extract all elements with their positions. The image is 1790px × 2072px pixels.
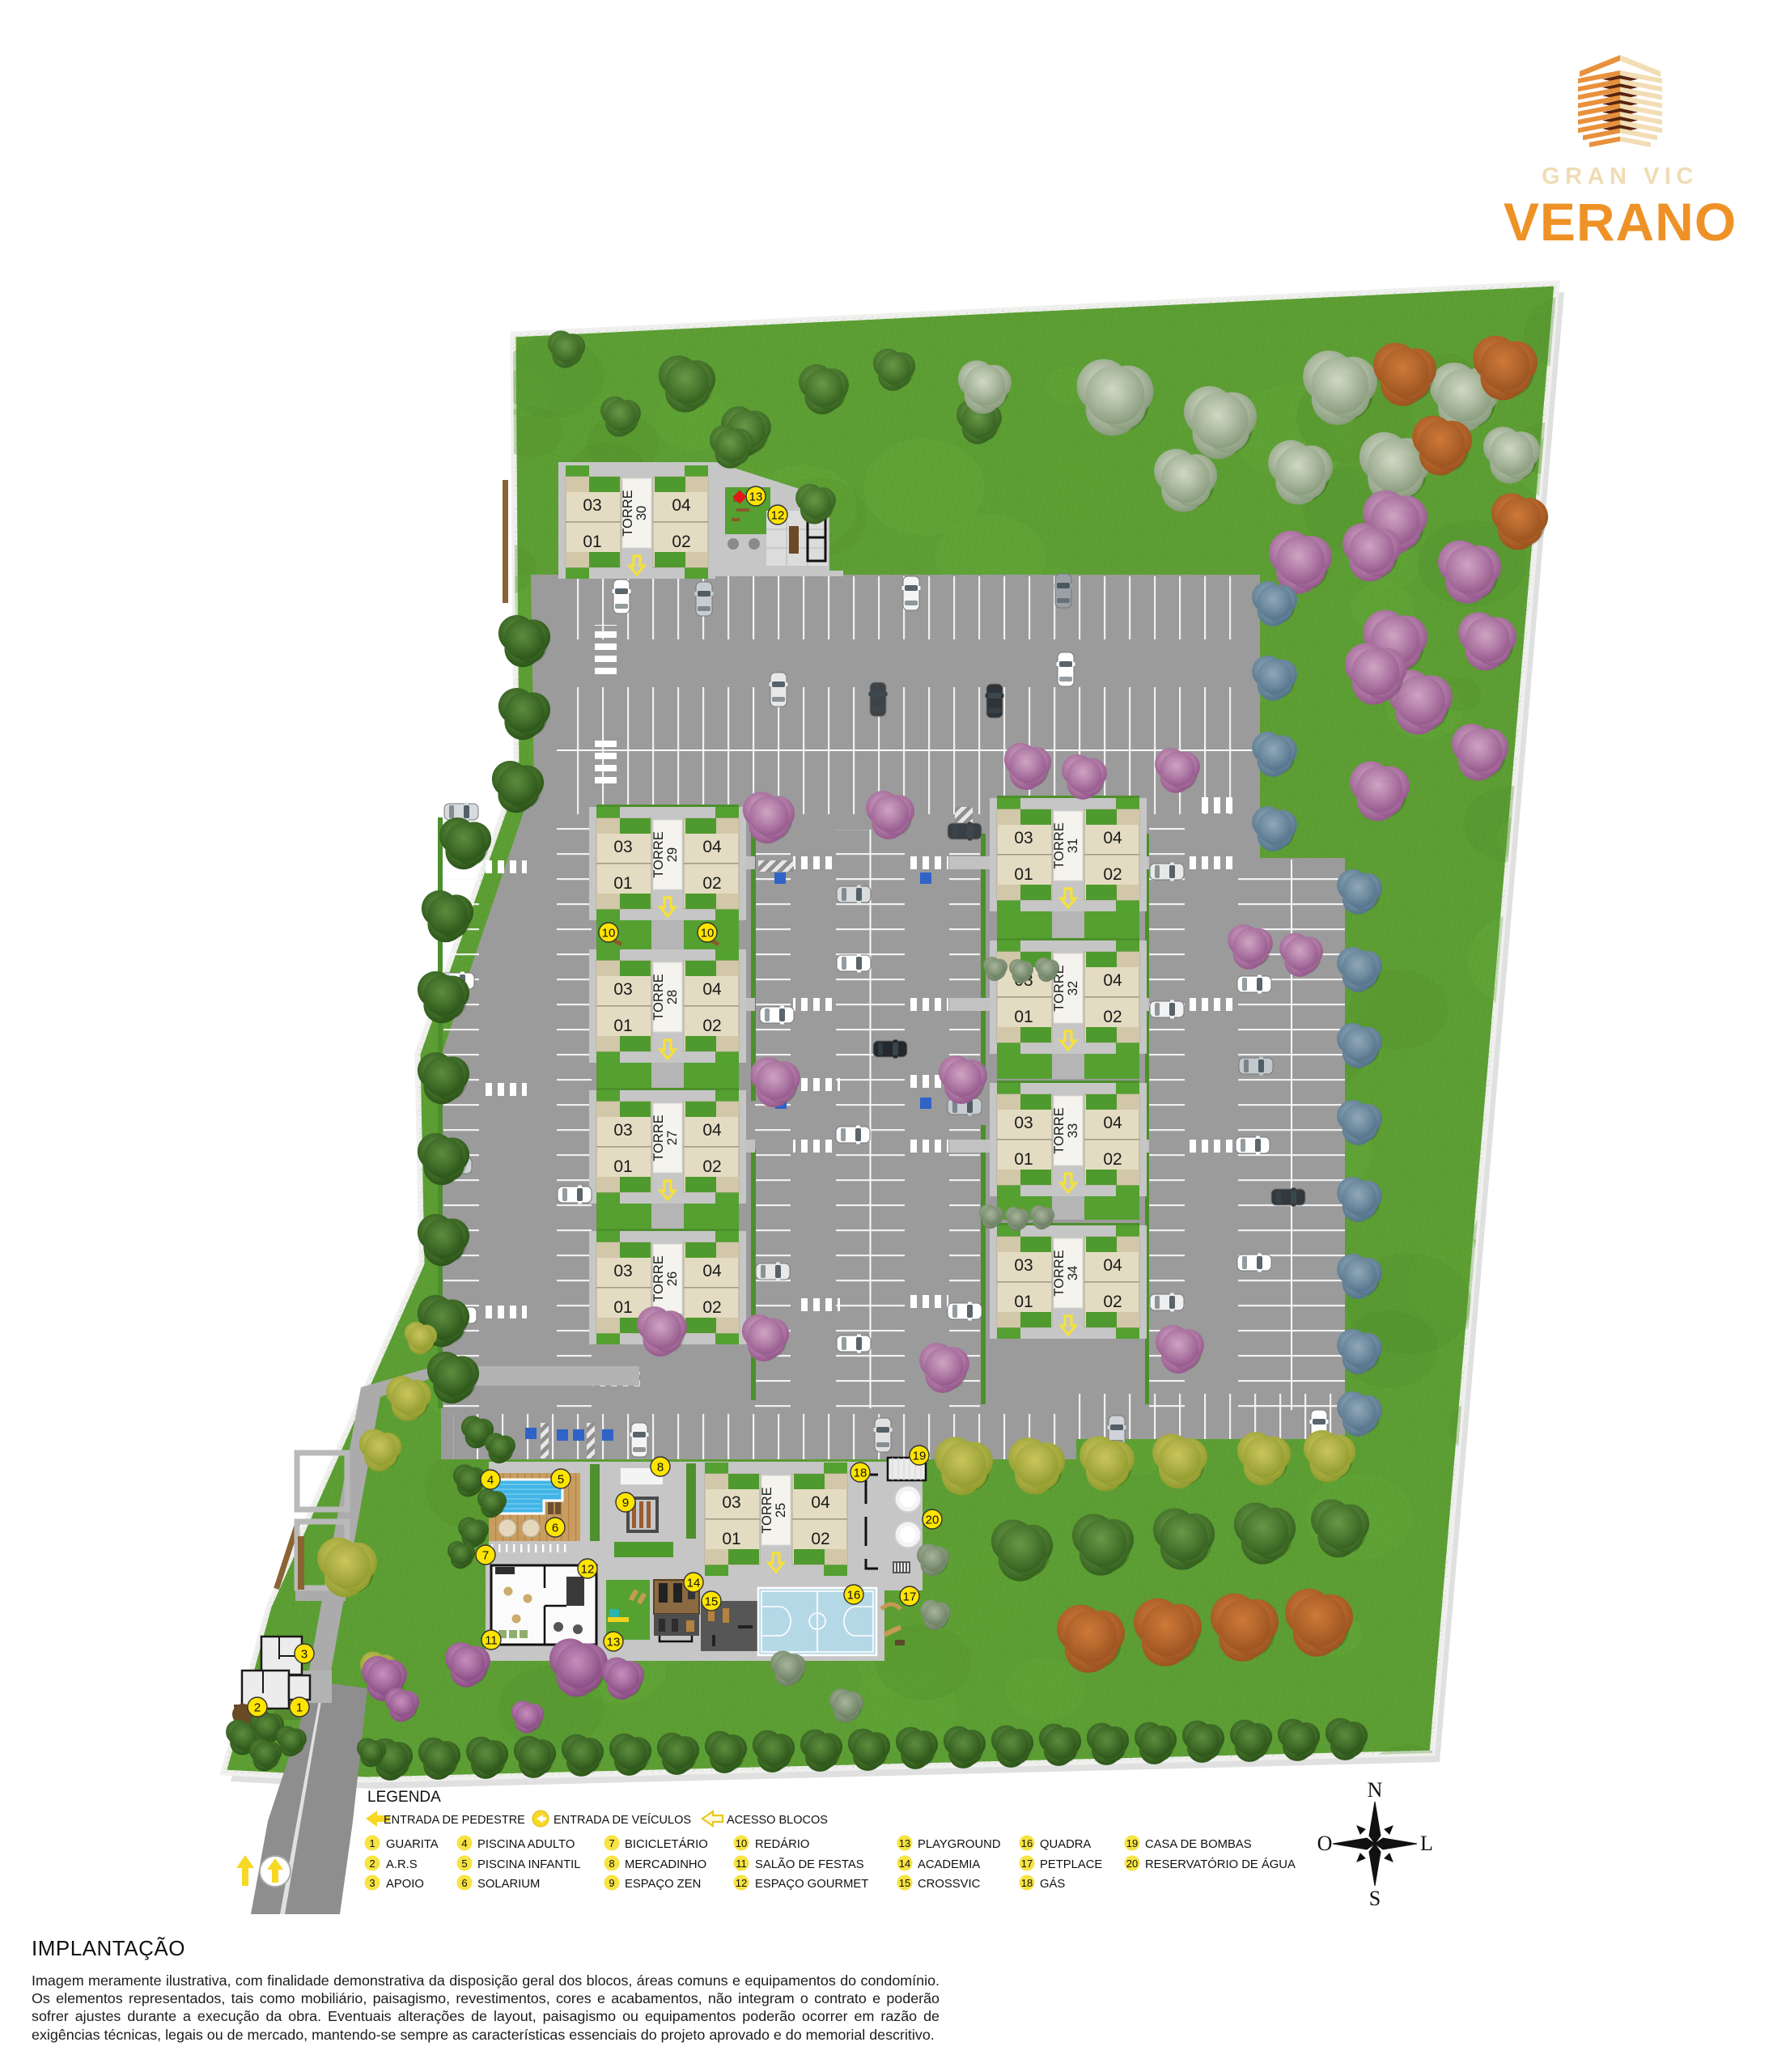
- svg-text:10: 10: [602, 927, 616, 940]
- svg-text:6: 6: [461, 1877, 467, 1889]
- svg-text:3: 3: [369, 1877, 375, 1889]
- svg-text:GÁS: GÁS: [1040, 1877, 1065, 1891]
- svg-text:ESPAÇO GOURMET: ESPAÇO GOURMET: [755, 1878, 868, 1891]
- svg-text:02: 02: [1103, 1293, 1122, 1311]
- svg-text:16: 16: [1021, 1837, 1033, 1849]
- svg-text:3: 3: [301, 1648, 308, 1662]
- svg-text:TORRE: TORRE: [621, 490, 635, 536]
- svg-text:03: 03: [1014, 1114, 1033, 1132]
- svg-text:01: 01: [1014, 865, 1033, 884]
- svg-text:19: 19: [913, 1450, 927, 1463]
- svg-text:18: 18: [1021, 1877, 1033, 1889]
- svg-text:19: 19: [1126, 1837, 1138, 1849]
- svg-text:12: 12: [771, 509, 785, 523]
- svg-text:5: 5: [461, 1858, 467, 1870]
- svg-text:10: 10: [736, 1837, 747, 1849]
- svg-text:29: 29: [665, 847, 680, 862]
- svg-text:1: 1: [296, 1701, 303, 1715]
- svg-text:TORRE: TORRE: [1052, 822, 1067, 868]
- svg-text:TORRE: TORRE: [1052, 1107, 1067, 1153]
- svg-text:13: 13: [749, 490, 763, 504]
- svg-text:ACADEMIA: ACADEMIA: [918, 1858, 980, 1871]
- svg-text:03: 03: [583, 496, 601, 515]
- svg-text:N: N: [1368, 1778, 1383, 1802]
- svg-text:7: 7: [482, 1549, 489, 1563]
- svg-text:04: 04: [1103, 829, 1122, 847]
- svg-text:31: 31: [1066, 839, 1080, 853]
- svg-text:01: 01: [1014, 1150, 1033, 1169]
- svg-text:4: 4: [461, 1837, 467, 1849]
- svg-text:02: 02: [811, 1530, 829, 1548]
- svg-text:TORRE: TORRE: [651, 831, 666, 877]
- svg-text:14: 14: [899, 1858, 910, 1870]
- svg-text:03: 03: [613, 980, 632, 999]
- svg-text:02: 02: [1103, 865, 1122, 884]
- svg-text:1: 1: [369, 1837, 375, 1849]
- svg-text:01: 01: [1014, 1293, 1033, 1311]
- svg-text:02: 02: [672, 533, 690, 551]
- svg-text:TORRE: TORRE: [1052, 1250, 1067, 1296]
- svg-text:LEGENDA: LEGENDA: [367, 1789, 441, 1806]
- svg-text:02: 02: [702, 1298, 721, 1317]
- svg-text:02: 02: [1103, 1150, 1122, 1169]
- svg-text:16: 16: [847, 1589, 861, 1603]
- svg-text:ENTRADA DE VEÍCULOS: ENTRADA DE VEÍCULOS: [554, 1813, 691, 1827]
- svg-text:SALÃO DE FESTAS: SALÃO DE FESTAS: [755, 1858, 864, 1871]
- svg-text:TORRE: TORRE: [651, 1255, 666, 1301]
- svg-text:28: 28: [665, 990, 680, 1004]
- svg-text:04: 04: [1103, 1256, 1122, 1275]
- svg-text:2: 2: [254, 1701, 261, 1715]
- svg-text:APOIO: APOIO: [386, 1878, 424, 1891]
- svg-text:6: 6: [552, 1522, 558, 1535]
- svg-text:02: 02: [702, 1157, 721, 1176]
- svg-text:03: 03: [722, 1493, 740, 1512]
- svg-text:8: 8: [609, 1858, 614, 1870]
- svg-text:17: 17: [903, 1590, 917, 1604]
- svg-text:GUARITA: GUARITA: [386, 1838, 439, 1851]
- svg-text:GRAN VIC: GRAN VIC: [1542, 163, 1699, 189]
- svg-text:SOLARIUM: SOLARIUM: [477, 1878, 540, 1891]
- svg-text:REDÁRIO: REDÁRIO: [755, 1837, 809, 1851]
- svg-text:04: 04: [811, 1493, 830, 1512]
- svg-text:2: 2: [369, 1858, 375, 1870]
- svg-text:PISCINA ADULTO: PISCINA ADULTO: [477, 1838, 575, 1851]
- svg-text:04: 04: [672, 496, 691, 515]
- svg-text:30: 30: [634, 506, 649, 520]
- svg-text:ENTRADA DE PEDESTRE: ENTRADA DE PEDESTRE: [384, 1814, 525, 1827]
- svg-text:7: 7: [609, 1837, 614, 1849]
- svg-text:01: 01: [583, 533, 601, 551]
- svg-text:01: 01: [613, 1017, 632, 1035]
- svg-text:04: 04: [702, 1262, 722, 1280]
- svg-text:04: 04: [1103, 1114, 1122, 1132]
- svg-text:4: 4: [487, 1474, 494, 1488]
- svg-text:27: 27: [665, 1131, 680, 1145]
- svg-text:04: 04: [702, 1121, 722, 1140]
- svg-text:15: 15: [705, 1595, 719, 1609]
- svg-text:03: 03: [613, 1121, 632, 1140]
- svg-text:02: 02: [1103, 1008, 1122, 1026]
- svg-text:01: 01: [613, 1298, 632, 1317]
- svg-text:A.R.S: A.R.S: [386, 1858, 418, 1871]
- svg-text:CASA DE BOMBAS: CASA DE BOMBAS: [1145, 1838, 1252, 1851]
- svg-text:10: 10: [701, 927, 715, 940]
- svg-text:MERCADINHO: MERCADINHO: [625, 1858, 706, 1871]
- svg-text:RESERVATÓRIO DE ÁGUA: RESERVATÓRIO DE ÁGUA: [1145, 1858, 1296, 1871]
- svg-text:33: 33: [1066, 1123, 1080, 1138]
- svg-text:S: S: [1369, 1887, 1381, 1910]
- svg-text:CROSSVIC: CROSSVIC: [918, 1878, 981, 1891]
- svg-text:01: 01: [613, 874, 632, 893]
- svg-text:02: 02: [702, 874, 721, 893]
- svg-text:QUADRA: QUADRA: [1040, 1838, 1091, 1851]
- svg-text:18: 18: [854, 1467, 867, 1480]
- svg-text:04: 04: [1103, 971, 1122, 990]
- svg-text:11: 11: [485, 1634, 498, 1648]
- svg-text:20: 20: [1126, 1858, 1138, 1870]
- svg-text:20: 20: [926, 1514, 940, 1527]
- svg-text:ACESSO BLOCOS: ACESSO BLOCOS: [727, 1814, 828, 1827]
- svg-text:TORRE: TORRE: [760, 1487, 774, 1533]
- svg-text:13: 13: [607, 1636, 621, 1650]
- svg-text:PLAYGROUND: PLAYGROUND: [918, 1838, 1001, 1851]
- svg-text:04: 04: [702, 838, 722, 856]
- svg-text:TORRE: TORRE: [651, 974, 666, 1020]
- svg-text:12: 12: [736, 1877, 747, 1889]
- svg-text:03: 03: [613, 1262, 632, 1280]
- svg-text:13: 13: [899, 1837, 910, 1849]
- svg-text:01: 01: [1014, 1008, 1033, 1026]
- svg-text:11: 11: [736, 1858, 747, 1870]
- svg-text:5: 5: [558, 1473, 564, 1487]
- svg-text:8: 8: [657, 1461, 664, 1475]
- svg-text:03: 03: [1014, 829, 1033, 847]
- svg-text:01: 01: [722, 1530, 740, 1548]
- svg-text:9: 9: [622, 1497, 629, 1510]
- svg-text:15: 15: [899, 1877, 910, 1889]
- svg-text:9: 9: [609, 1877, 614, 1889]
- svg-text:ESPAÇO ZEN: ESPAÇO ZEN: [625, 1878, 701, 1891]
- svg-text:17: 17: [1021, 1858, 1033, 1870]
- svg-text:PISCINA INFANTIL: PISCINA INFANTIL: [477, 1858, 580, 1871]
- svg-text:TORRE: TORRE: [651, 1115, 666, 1161]
- svg-text:PETPLACE: PETPLACE: [1040, 1858, 1102, 1871]
- svg-text:03: 03: [1014, 1256, 1033, 1275]
- svg-text:26: 26: [665, 1272, 680, 1286]
- svg-text:L: L: [1420, 1832, 1433, 1855]
- svg-text:03: 03: [613, 838, 632, 856]
- svg-text:O: O: [1317, 1832, 1333, 1855]
- svg-text:VERANO: VERANO: [1504, 192, 1737, 252]
- svg-text:12: 12: [581, 1563, 595, 1577]
- svg-text:34: 34: [1066, 1266, 1080, 1280]
- svg-text:01: 01: [613, 1157, 632, 1176]
- svg-text:25: 25: [774, 1503, 788, 1518]
- svg-text:04: 04: [702, 980, 722, 999]
- svg-text:02: 02: [702, 1017, 721, 1035]
- svg-text:32: 32: [1066, 981, 1080, 996]
- svg-text:BICICLETÁRIO: BICICLETÁRIO: [625, 1837, 708, 1851]
- svg-text:14: 14: [687, 1577, 701, 1590]
